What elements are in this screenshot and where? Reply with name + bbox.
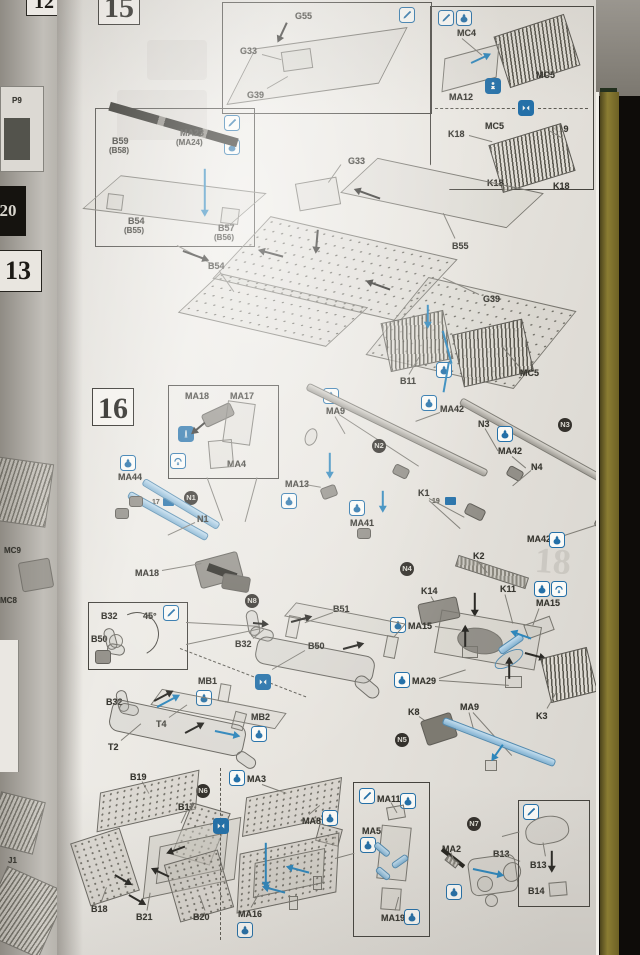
adjacent-page-edge-fragment (0, 640, 19, 772)
glue-icon (446, 884, 462, 900)
subassembly-badge-n6: N6 (196, 784, 210, 798)
part-label-ma5: MA5 (362, 826, 381, 836)
part-label-b11: B11 (400, 376, 416, 386)
part-label-ma19: MA19 (381, 913, 405, 923)
background-shadow-wedge (596, 0, 640, 96)
assembly-arrow (183, 250, 204, 259)
option-divider-dash (435, 108, 515, 109)
paint-icon (438, 10, 454, 26)
assembly-arrow-blue (265, 843, 267, 883)
part-label-b59: B59 (112, 136, 129, 146)
part-label-k18-br: K18 (553, 181, 570, 191)
part-label-b32-top: B32 (235, 639, 252, 649)
step-15-number: 15 (98, 0, 140, 25)
part-label-ma9-k8: MA9 (460, 702, 479, 712)
drawing-part-b50 (95, 650, 111, 664)
drawing-tool-part (208, 439, 234, 469)
part-label-g33-main: G33 (348, 156, 365, 166)
olive-book-spine-strip (600, 92, 619, 955)
drawing-small-part (313, 876, 322, 890)
adjacent-drawing-fragment (18, 557, 55, 592)
assembly-arrow (508, 663, 510, 679)
subassembly-badge-n3: N3 (558, 418, 572, 432)
part-label-k3: K3 (536, 711, 548, 721)
drawing-rod-ring (302, 426, 319, 447)
drawing-hook-ma13 (319, 484, 338, 501)
glue-icon (404, 909, 420, 925)
part-label-b54-inset: B54 (128, 216, 145, 226)
adjacent-part-label-mc8: MC8 (0, 596, 17, 606)
glue-icon (421, 395, 437, 411)
part-label-b57-alt: (B56) (214, 233, 234, 243)
part-label-g55: G55 (295, 11, 312, 21)
drawing-small-part (289, 896, 298, 910)
leader-line (439, 680, 509, 686)
part-label-ma23-alt: (MA24) (176, 138, 203, 148)
drawing-cable-hooks (221, 573, 251, 594)
leader-line (415, 412, 440, 422)
step-16-number: 16 (92, 388, 134, 426)
drawing-foot-ma29 (462, 646, 478, 658)
part-label-mb2: MB2 (251, 712, 270, 722)
drawing-head-k8 (420, 712, 458, 747)
glue-icon (281, 493, 297, 509)
inset-pointer-line (207, 477, 224, 521)
assembly-arrow (129, 894, 142, 902)
part-label-b13-lamp: B13 (530, 860, 547, 870)
assembly-arrow (474, 593, 476, 611)
part-label-b21: B21 (136, 912, 153, 922)
glue-icon (394, 672, 410, 688)
instruction-page: 15 G55 G33 G39 MC4 MC5 MA12 MC5 K19 K18 (57, 0, 599, 955)
adjacent-part-label-mc9: MC9 (4, 546, 21, 556)
adjacent-step-number-20: 20 (0, 186, 26, 236)
inset-pointer-line (245, 477, 258, 522)
part-label-ma23: MA23 (180, 128, 204, 138)
cover-icon (551, 581, 567, 597)
part-label-b59-alt: (B58) (109, 146, 129, 156)
drawing-end-block (106, 193, 124, 211)
part-label-k14: K14 (421, 586, 438, 596)
part-label-b55: B55 (452, 241, 469, 251)
subassembly-badge-n2: N2 (372, 439, 386, 453)
part-label-g33: G33 (240, 46, 257, 56)
paint-icon (224, 115, 240, 131)
drawing-rod-fork (463, 502, 486, 522)
page-edge-highlight (596, 92, 599, 955)
drawing-rod-collar (505, 465, 524, 482)
glue-icon (534, 581, 550, 597)
show-through-step-number: 18 (534, 539, 573, 583)
part-label-n4: N4 (531, 462, 543, 472)
part-label-mc5-bottom: MC5 (485, 121, 504, 131)
photo-of-instruction-sheet: 12 P9 20 13 MC9 MC8 J1 15 G55 G33 G39 (0, 0, 640, 955)
subassembly-badge-n8: N8 (245, 594, 259, 608)
assembly-arrow-blue (329, 453, 331, 473)
adjacent-drawing-fragment (0, 456, 54, 527)
part-label-g39-main: G39 (483, 294, 500, 304)
glue-icon (436, 362, 452, 378)
part-label-ma3: MA3 (247, 774, 266, 784)
adjacent-part-label-j1: J1 (8, 856, 17, 866)
part-label-g39: G39 (247, 90, 264, 100)
drawing-outlet-t2 (234, 749, 259, 771)
part-label-b32-inset: B32 (101, 611, 118, 621)
part-label-ma12: MA12 (449, 92, 473, 102)
leader-line (439, 669, 466, 679)
drawing-small-wheel (485, 894, 498, 907)
glue-icon (349, 500, 365, 516)
assembly-arrow (464, 631, 466, 647)
adjacent-drawing-fragment (0, 791, 46, 855)
adjacent-step-number-13: 13 (0, 250, 42, 292)
assembly-arrow-blue (204, 169, 206, 211)
position-figure-icon (485, 78, 501, 94)
paint-icon (399, 7, 415, 23)
inset-pointer-line (502, 831, 520, 837)
leader-line (505, 594, 514, 623)
adjacent-drawing-fragment (4, 118, 30, 160)
part-label-ma11: MA11 (377, 794, 401, 804)
part-label-b54-alt: (B55) (124, 226, 144, 236)
glue-icon (229, 770, 245, 786)
part-label-b50: B50 (308, 641, 325, 651)
part-label-t2: T2 (108, 742, 119, 752)
drawing-ribbed-rod-k2 (455, 555, 529, 589)
page-gutter-shadow (57, 0, 83, 955)
part-label-ma16: MA16 (238, 909, 262, 919)
part-label-ma29: MA29 (412, 676, 436, 686)
part-label-k1: K1 (418, 488, 430, 498)
drawing-base-b14 (548, 881, 567, 897)
assembly-arrow-blue (382, 491, 384, 507)
part-label-ma18: MA18 (185, 391, 209, 401)
leader-line (335, 416, 346, 434)
adjacent-part-label-p9: P9 (12, 96, 22, 106)
subassembly-badge-n4: N4 (400, 562, 414, 576)
glue-icon (120, 455, 136, 471)
part-label-ma41: MA41 (350, 518, 374, 528)
cover-icon (170, 453, 186, 469)
paint-icon (163, 605, 179, 621)
adjacent-pages-strip: 12 P9 20 13 MC9 MC8 J1 (0, 0, 62, 955)
drawing-cable-end (115, 508, 129, 519)
part-label-ma15-right: MA15 (536, 598, 560, 608)
drawing-bracket-end (383, 635, 399, 659)
part-label-mc5-top: MC5 (536, 70, 555, 80)
option-divider-dash-vertical (220, 768, 221, 940)
part-label-b57: B57 (218, 223, 235, 233)
part-label-mc5-main: MC5 (520, 368, 539, 378)
part-label-b18: B18 (91, 904, 108, 914)
part-label-ma42-b: MA42 (498, 446, 522, 456)
drawing-part-ma41 (357, 528, 371, 539)
option-divider-dash (538, 108, 588, 109)
subassembly-badge-n7: N7 (467, 817, 481, 831)
part-label-ma18-cable: MA18 (135, 568, 159, 578)
part-label-k18-left: K18 (448, 129, 465, 139)
glue-icon (497, 426, 513, 442)
show-through-blob (147, 40, 207, 80)
part-label-mc4: MC4 (457, 28, 476, 38)
glue-icon (251, 726, 267, 742)
part-label-ma15-left: MA15 (408, 621, 432, 631)
drawing-cable-end (129, 496, 143, 507)
drawing-rod-k8 (442, 717, 557, 767)
drawing-grille-k3 (540, 647, 598, 703)
part-label-b14: B14 (528, 886, 545, 896)
length-tag-box (445, 497, 456, 505)
optional-parts-icon (213, 818, 229, 834)
glue-icon (237, 922, 253, 938)
glue-icon (456, 10, 472, 26)
part-label-b20: B20 (193, 912, 210, 922)
drawing-bracket-g33 (295, 177, 341, 212)
part-label-b19: B19 (130, 772, 147, 782)
part-label-k11: K11 (500, 584, 516, 594)
part-label-k8: K8 (408, 707, 420, 717)
subassembly-badge-n5: N5 (395, 733, 409, 747)
paint-icon (359, 788, 375, 804)
assembly-arrow-blue (427, 305, 429, 323)
drawing-rod-collar (391, 463, 410, 480)
drawing-pivot (109, 634, 123, 648)
part-label-ma17: MA17 (230, 391, 254, 401)
part-label-n1: N1 (197, 514, 209, 524)
part-label-ma44: MA44 (118, 472, 142, 482)
drawing-wheel-b13 (477, 876, 493, 892)
assembly-arrow (343, 644, 359, 650)
part-label-b54-main: B54 (208, 261, 225, 271)
assembly-arrow (551, 851, 553, 867)
drawing-muffler-outlet (352, 673, 382, 702)
part-label-mb1: MB1 (198, 676, 217, 686)
optional-parts-icon (255, 674, 271, 690)
optional-parts-icon (518, 100, 534, 116)
drawing-bracket-g33 (281, 48, 313, 72)
